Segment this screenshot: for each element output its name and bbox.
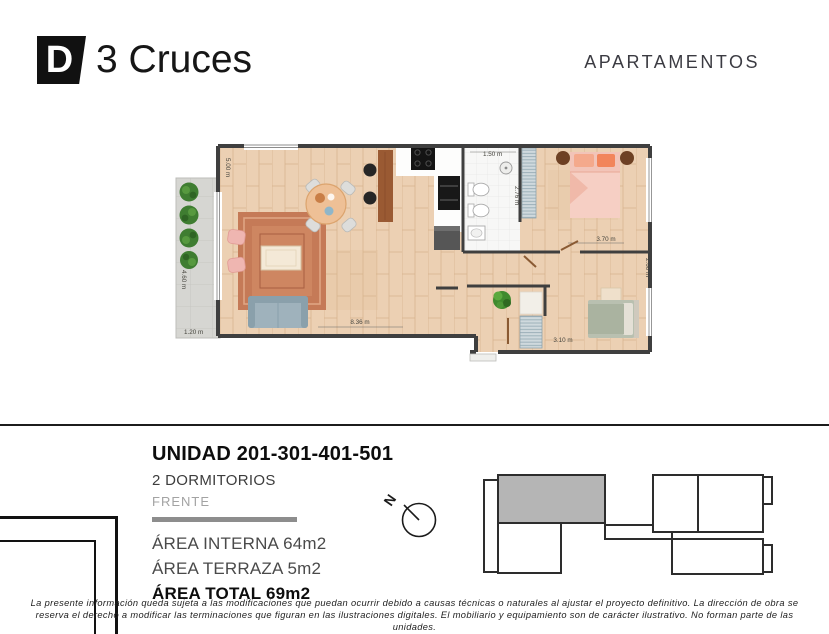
sofa [248,296,308,328]
closet-bedroom2 [520,316,542,348]
hallway-plant [493,291,511,309]
dim-terrace-width: 1.20 m [184,329,203,336]
content-divider [0,424,829,426]
bar-stool [364,164,377,177]
apartments-label: APARTAMENTOS [584,52,760,73]
disclaimer-line-1: La presente información queda sujeta a l… [0,598,829,610]
hall-niche [520,292,542,314]
building-key-plan [468,442,788,595]
closet-master [522,148,536,218]
disclaimer-line-3: unidades. [0,622,829,634]
armchair [227,257,246,273]
entry-step [470,354,496,361]
kitchen-bar [378,150,393,222]
keyplan-right-lower [672,539,763,574]
single-bed [588,300,639,338]
keyplan-notch-top [763,477,772,504]
keyplan-left-sliver [484,480,498,572]
logo-d-mark: D [37,36,86,84]
toilet [468,183,489,196]
compass: N [383,487,455,554]
keyplan-right-block [653,475,763,532]
area-terrace: ÁREA TERRAZA 5m2 [152,556,482,581]
bathroom-sink [468,226,485,240]
unit-divider-bar [152,517,297,522]
logo-letter: D [46,39,73,82]
corner-outer-horizontal [0,516,118,519]
dim-bedroom2-width: 3.10 m [553,337,572,344]
dim-bedroom1-width: 3.70 m [596,236,615,243]
nightstand [601,288,621,301]
keyplan-notch-bottom [763,545,772,572]
keyplan-unit-below [498,523,561,573]
cooktop [411,146,435,170]
bar-stool [364,192,377,205]
master-bed [570,152,620,218]
compass-needle [404,505,419,520]
brand-wordmark: 3 Cruces [96,38,252,82]
bidet [468,204,489,217]
disclaimer: La presente información queda sujeta a l… [0,598,829,633]
compass-north-label: N [383,491,399,508]
terrace: 4.60 m 1.20 m [176,178,220,338]
coffee-table [261,246,301,270]
unit-title: UNIDAD 201-301-401-501 [152,443,482,466]
dim-living-width: 5.00 m [224,158,231,177]
dim-living-length: 8.36 m [350,319,369,326]
disclaimer-line-2: reserva el derecho a modificar las termi… [0,610,829,622]
nightstand [556,151,570,165]
oven-stack [438,176,460,210]
header: D 3 Cruces APARTAMENTOS [0,0,829,100]
armchair [227,229,246,245]
floor-plan: 4.60 m 1.20 m 1.50 m 2.76 m [168,130,668,370]
keyplan-highlighted-unit [498,475,605,523]
nightstand [620,151,634,165]
dim-terrace-depth: 4.60 m [180,270,187,289]
brand-logo: D 3 Cruces [37,36,252,84]
dim-bath-width: 1.50 m [483,151,502,158]
bathroom: 1.50 m 2.76 m [463,146,520,252]
corner-inner-horizontal [0,540,96,542]
